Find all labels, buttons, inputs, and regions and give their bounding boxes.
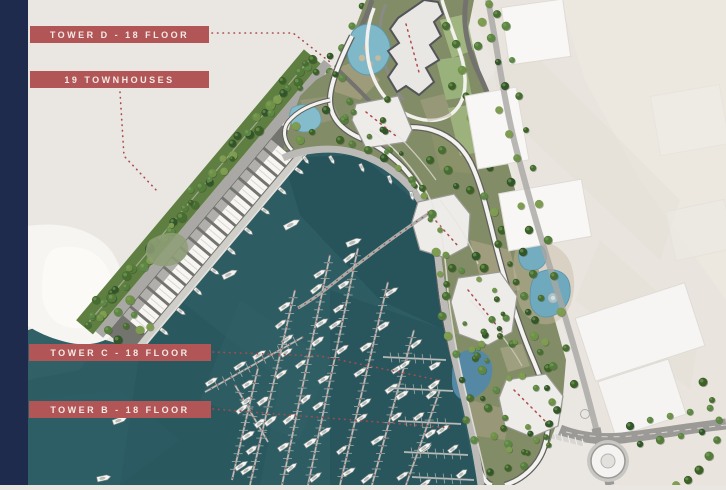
- svg-text:19 TOWNHOUSES: 19 TOWNHOUSES: [64, 75, 174, 85]
- svg-text:TOWER C - 18 FLOOR: TOWER C - 18 FLOOR: [50, 348, 189, 358]
- svg-text:TOWER D - 18 FLOOR: TOWER D - 18 FLOOR: [50, 30, 189, 40]
- svg-text:TOWER B - 18 FLOOR: TOWER B - 18 FLOOR: [50, 405, 189, 415]
